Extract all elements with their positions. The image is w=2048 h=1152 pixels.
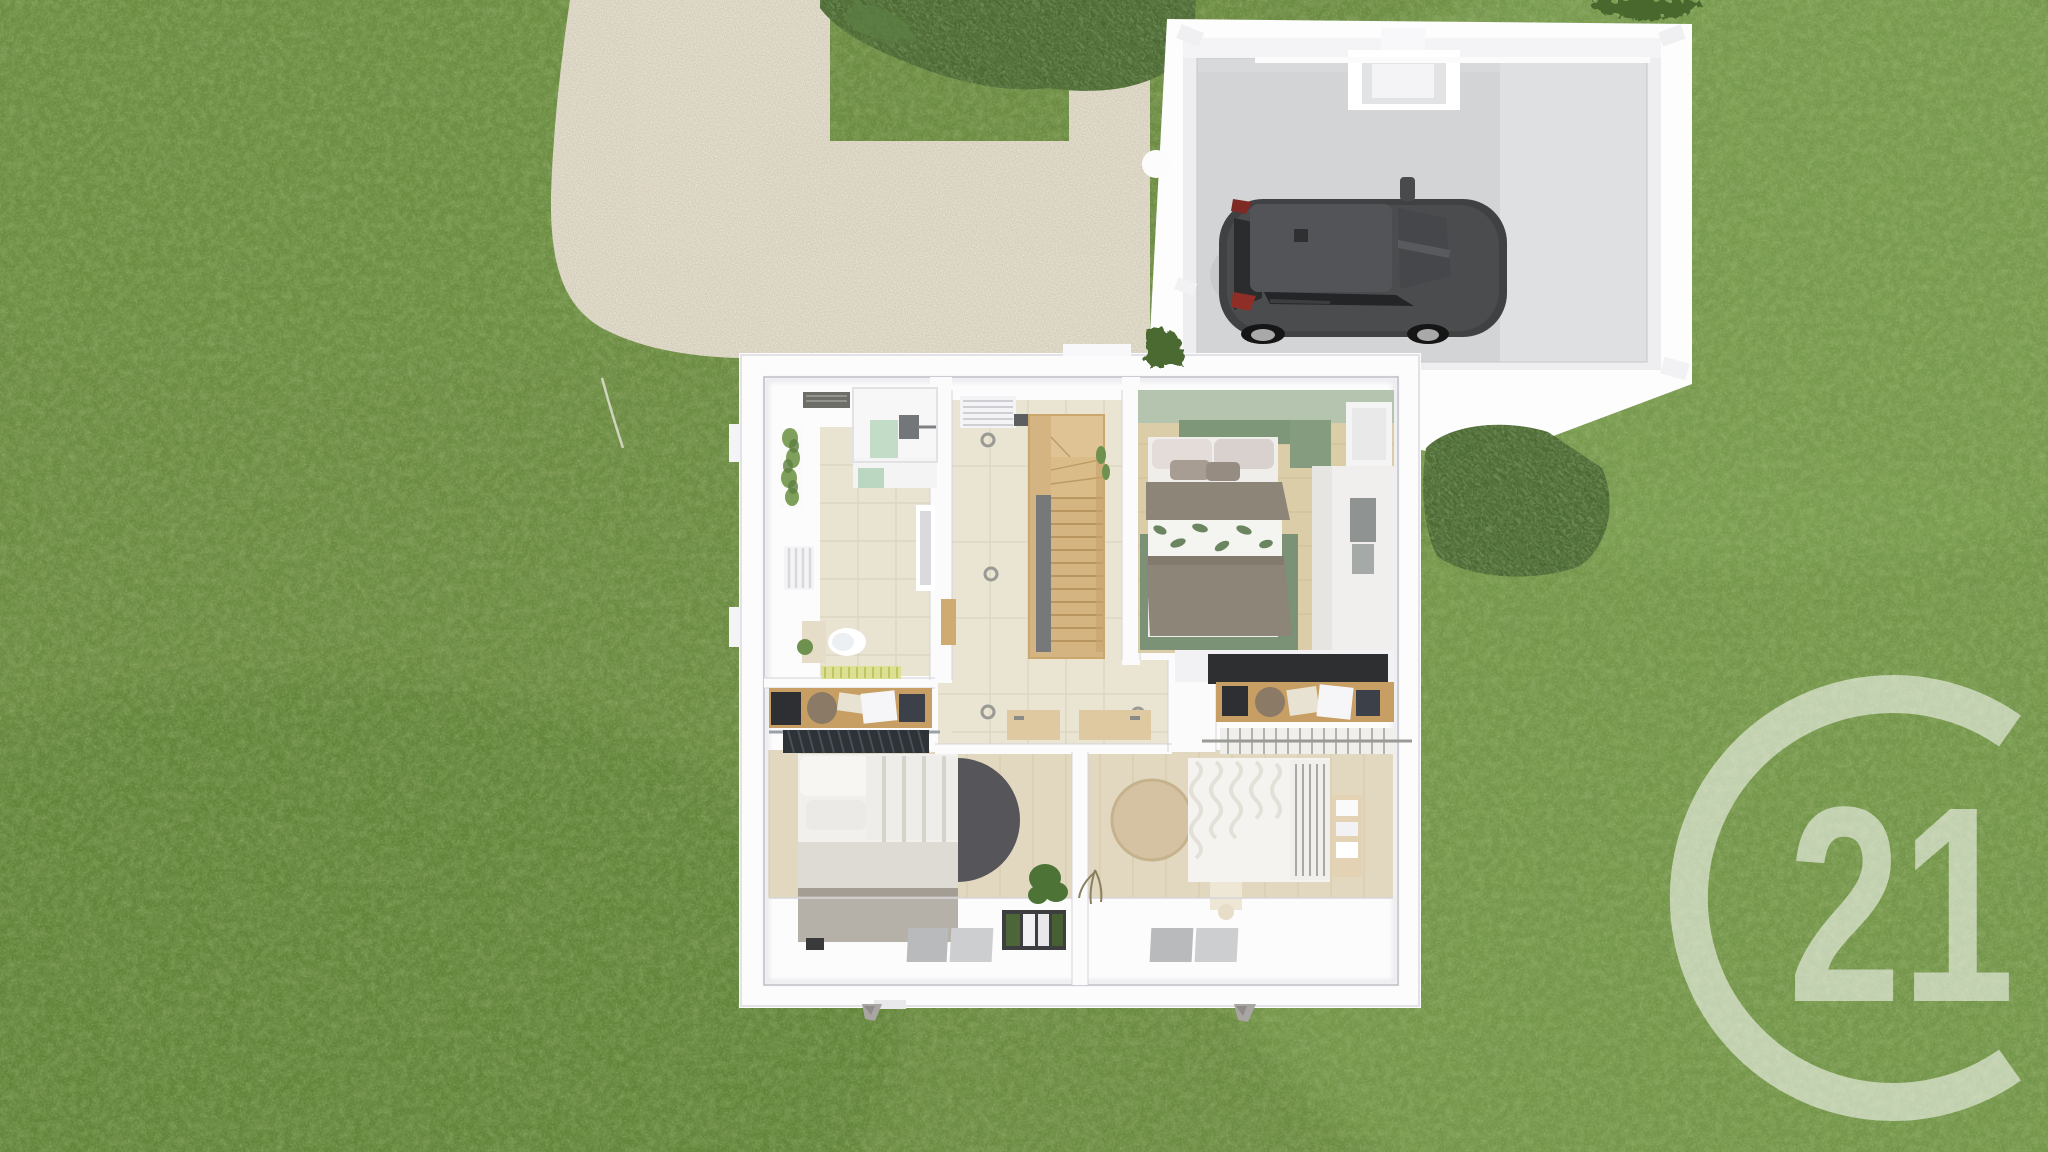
svg-text:21: 21 xyxy=(1788,749,2015,1061)
